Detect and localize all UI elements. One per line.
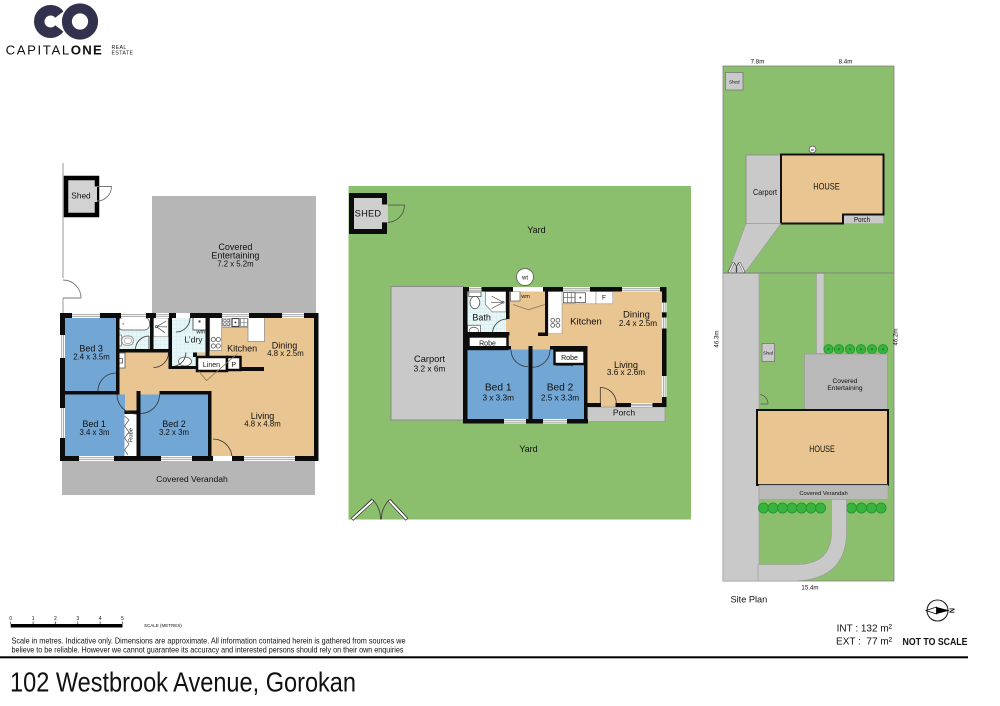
svg-text:wm: wm bbox=[520, 294, 530, 300]
svg-text:5: 5 bbox=[121, 616, 124, 622]
svg-text:102 Westbrook Avenue, Gorokan: 102 Westbrook Avenue, Gorokan bbox=[10, 666, 356, 697]
svg-text:Shed: Shed bbox=[729, 80, 740, 85]
svg-text:HOUSE: HOUSE bbox=[813, 181, 840, 192]
svg-text:Linen: Linen bbox=[203, 362, 220, 369]
svg-text:Bath: Bath bbox=[472, 313, 491, 323]
svg-text:P: P bbox=[231, 362, 236, 369]
svg-text:EXT : 77 m²: EXT : 77 m² bbox=[836, 637, 893, 648]
svg-text:15.4m: 15.4m bbox=[801, 585, 818, 592]
svg-text:4.8 x 4.8m: 4.8 x 4.8m bbox=[244, 420, 280, 429]
svg-text:3.2 x 6m: 3.2 x 6m bbox=[414, 364, 446, 374]
svg-text:N: N bbox=[948, 608, 955, 613]
svg-text:8.4m: 8.4m bbox=[839, 59, 853, 66]
svg-text:2: 2 bbox=[54, 616, 57, 622]
svg-text:Entertaining: Entertaining bbox=[827, 385, 863, 392]
svg-text:7.2 x 5.2m: 7.2 x 5.2m bbox=[217, 259, 253, 268]
svg-text:Scale in metres. Indicative on: Scale in metres. Indicative only. Dimens… bbox=[12, 637, 406, 646]
svg-text:46.3m: 46.3m bbox=[714, 330, 721, 347]
svg-text:7.8m: 7.8m bbox=[751, 59, 765, 66]
svg-text:Yard: Yard bbox=[527, 225, 545, 235]
svg-text:Bed 2: Bed 2 bbox=[547, 383, 574, 394]
svg-text:3.2 x 3m: 3.2 x 3m bbox=[159, 428, 189, 437]
svg-text:F: F bbox=[602, 295, 606, 302]
svg-text:2.5 x 3.3m: 2.5 x 3.3m bbox=[541, 394, 579, 403]
svg-text:Covered Verandah: Covered Verandah bbox=[799, 491, 847, 497]
svg-text:4.8 x 2.5m: 4.8 x 2.5m bbox=[267, 349, 303, 358]
svg-text:CAPITALONE: CAPITALONE bbox=[6, 42, 103, 57]
svg-text:L’dry: L’dry bbox=[185, 334, 204, 344]
svg-text:2.4 x 2.5m: 2.4 x 2.5m bbox=[619, 319, 657, 328]
svg-text:Bed 1: Bed 1 bbox=[485, 383, 512, 394]
svg-text:wm: wm bbox=[196, 330, 206, 336]
svg-text:wt: wt bbox=[811, 148, 814, 152]
svg-text:Porch: Porch bbox=[613, 408, 635, 418]
svg-text:3 x 3.3m: 3 x 3.3m bbox=[482, 394, 514, 403]
svg-text:Shed: Shed bbox=[763, 351, 773, 356]
svg-text:46.2m: 46.2m bbox=[893, 328, 900, 345]
svg-text:believe to be reliable. Howeve: believe to be reliable. However we canno… bbox=[12, 645, 404, 654]
svg-text:Kitchen: Kitchen bbox=[227, 343, 257, 353]
svg-text:Yard: Yard bbox=[519, 444, 537, 454]
svg-text:NOT TO SCALE: NOT TO SCALE bbox=[903, 636, 968, 648]
svg-text:3.4 x 3m: 3.4 x 3m bbox=[80, 428, 110, 437]
svg-text:Carport: Carport bbox=[753, 187, 778, 197]
svg-text:3.6 x 2.6m: 3.6 x 2.6m bbox=[607, 368, 645, 377]
svg-text:ESTATE: ESTATE bbox=[112, 51, 134, 57]
svg-text:2.4 x 3.5m: 2.4 x 3.5m bbox=[73, 352, 109, 361]
svg-text:SCALE (METRES): SCALE (METRES) bbox=[144, 623, 182, 628]
svg-text:wt: wt bbox=[521, 276, 528, 282]
svg-text:Shed: Shed bbox=[71, 191, 91, 201]
svg-text:Robe: Robe bbox=[129, 428, 135, 442]
svg-text:INT : 132 m²: INT : 132 m² bbox=[837, 624, 893, 635]
svg-text:Porch: Porch bbox=[854, 217, 870, 224]
svg-text:Robe: Robe bbox=[561, 355, 578, 362]
svg-text:4: 4 bbox=[99, 616, 102, 622]
svg-text:Site Plan: Site Plan bbox=[731, 595, 768, 605]
svg-text:0: 0 bbox=[9, 616, 12, 622]
svg-text:HOUSE: HOUSE bbox=[809, 444, 835, 455]
svg-text:SHED: SHED bbox=[355, 209, 382, 219]
svg-text:Carport: Carport bbox=[414, 354, 445, 364]
svg-text:1: 1 bbox=[32, 616, 35, 622]
svg-text:3: 3 bbox=[76, 616, 79, 622]
svg-text:Kitchen: Kitchen bbox=[570, 317, 602, 328]
svg-text:Covered Verandah: Covered Verandah bbox=[156, 474, 228, 484]
